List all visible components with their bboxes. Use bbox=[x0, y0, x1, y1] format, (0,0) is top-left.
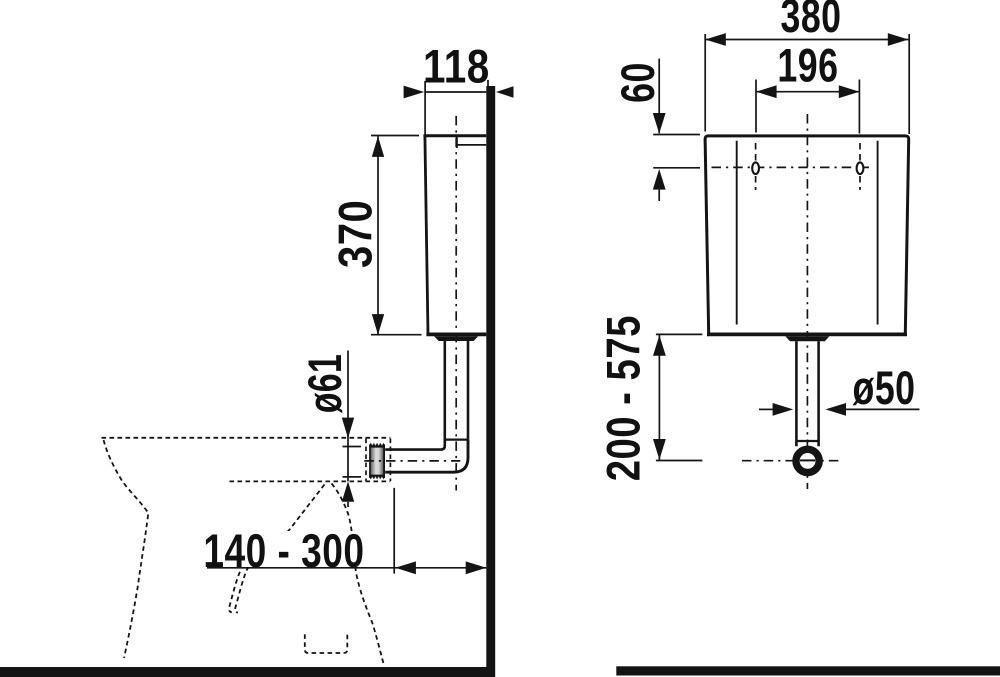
svg-text:60: 60 bbox=[611, 62, 664, 103]
svg-text:200 - 575: 200 - 575 bbox=[598, 315, 651, 481]
svg-text:ø61: ø61 bbox=[298, 354, 351, 414]
svg-text:140 - 300: 140 - 300 bbox=[203, 525, 364, 577]
svg-text:196: 196 bbox=[777, 39, 838, 92]
svg-text:380: 380 bbox=[781, 0, 842, 42]
svg-text:370: 370 bbox=[331, 200, 383, 268]
svg-text:ø50: ø50 bbox=[853, 361, 916, 414]
svg-text:118: 118 bbox=[423, 41, 490, 94]
